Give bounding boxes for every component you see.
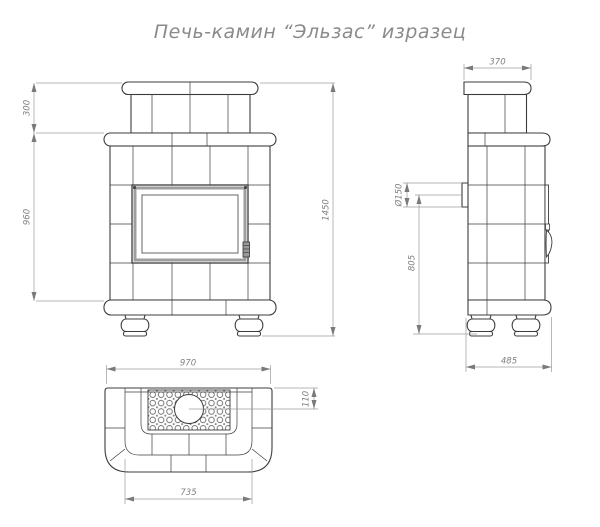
dim-label-flue-center-offset: 110 <box>302 391 312 407</box>
side-flue-outlet <box>462 183 468 207</box>
dim-plan-overall-width: 970 <box>107 359 271 385</box>
side-view: 370 Ø150 805 485 <box>394 58 552 373</box>
drawing-sheet: Печь-камин “Эльзас” изразец <box>0 0 600 527</box>
side-cornice-shelf <box>468 133 550 146</box>
plan-top-grate <box>148 390 230 430</box>
side-chimney-cap <box>464 82 531 95</box>
front-foot-left <box>121 315 149 336</box>
dim-label-top-depth: 370 <box>489 58 505 68</box>
side-foot-front <box>467 315 495 336</box>
drawing-title: Печь-камин “Эльзас” изразец <box>154 21 466 43</box>
dim-label-body-height: 960 <box>23 209 33 225</box>
dim-front-right: 1450 <box>260 83 335 336</box>
front-cornice-shelf <box>104 133 276 146</box>
plan-view: 110 970 735 <box>105 359 318 505</box>
side-foot-back <box>512 315 540 336</box>
side-door-handle <box>546 224 552 257</box>
side-chimney <box>468 95 527 134</box>
door-glass <box>142 195 238 253</box>
front-base-plinth <box>104 300 276 315</box>
door-hinge-left <box>133 186 136 189</box>
dim-front-left: 300 960 <box>23 83 123 301</box>
front-firebox-door <box>132 185 250 263</box>
dim-label-overall-width: 970 <box>180 359 196 369</box>
dim-label-base-depth: 485 <box>501 357 517 367</box>
dim-label-front-width: 735 <box>180 488 196 498</box>
dim-label-chimney-height: 300 <box>23 100 33 116</box>
dim-label-flue-diameter: Ø150 <box>394 184 405 208</box>
dim-label-total-height: 1450 <box>322 199 332 221</box>
side-body-tiles <box>468 146 545 300</box>
dim-label-flue-center-height: 805 <box>408 255 418 271</box>
dim-side-flue-height: 805 <box>408 195 478 334</box>
front-view: 300 960 1450 <box>23 82 336 336</box>
front-chimney <box>131 95 250 134</box>
door-hinge-right <box>244 186 247 189</box>
front-foot-right <box>235 315 263 336</box>
dim-side-top: 370 <box>464 58 531 81</box>
front-door-handle <box>243 242 250 257</box>
side-base-plinth <box>468 300 551 315</box>
technical-drawing: Печь-камин “Эльзас” изразец <box>0 0 600 527</box>
